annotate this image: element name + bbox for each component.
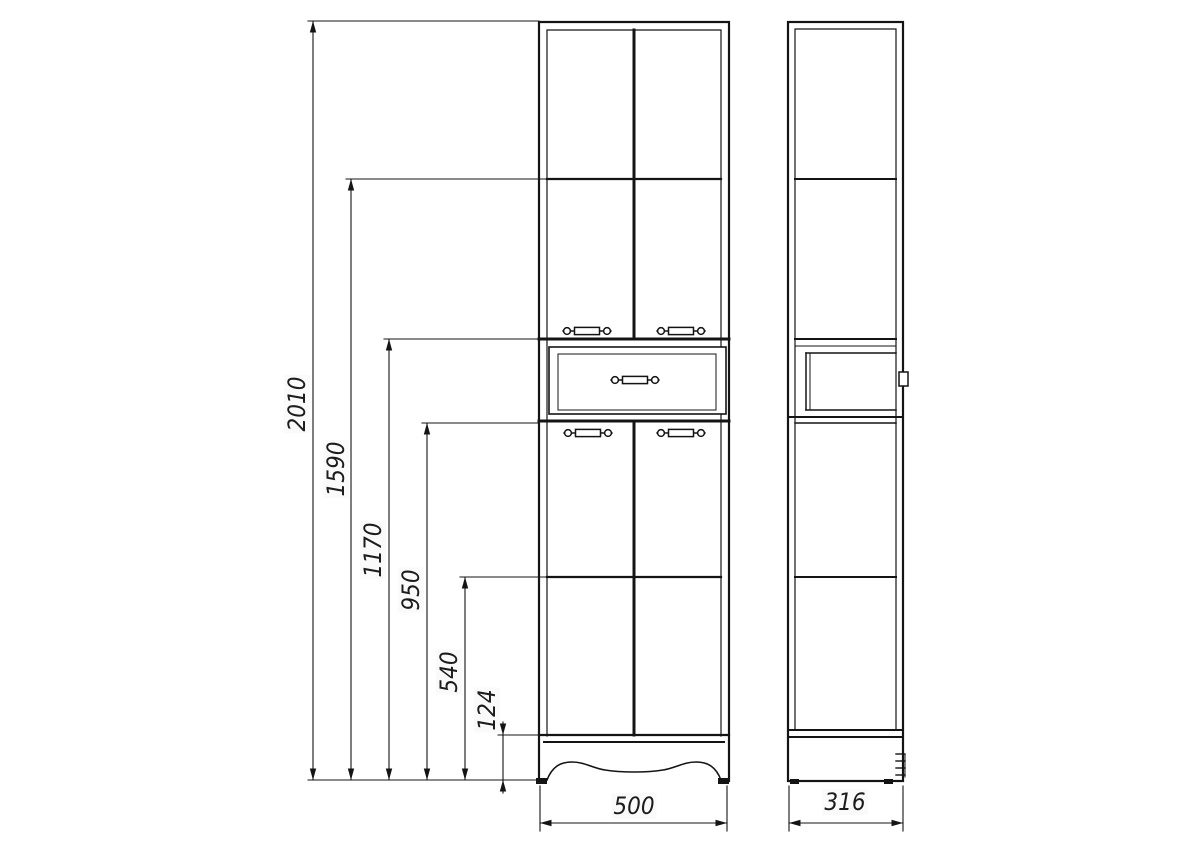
dim-label-540: 540	[436, 650, 462, 695]
dim-label-side-depth-316: 316	[823, 789, 868, 815]
dim-label-2010: 2010	[284, 375, 310, 434]
dimension-lines	[308, 21, 903, 831]
cabinet-technical-drawing: 2010 1590 1170 950 540 124 500 316	[0, 0, 1200, 848]
side-view	[788, 22, 908, 784]
dim-label-front-width-500: 500	[612, 793, 657, 819]
front-view	[536, 22, 729, 784]
dim-label-1590: 1590	[323, 440, 349, 499]
dim-label-1170: 1170	[360, 521, 386, 580]
dim-label-950: 950	[398, 568, 424, 613]
drawing-canvas	[0, 0, 1200, 848]
dim-label-124: 124	[474, 688, 500, 733]
